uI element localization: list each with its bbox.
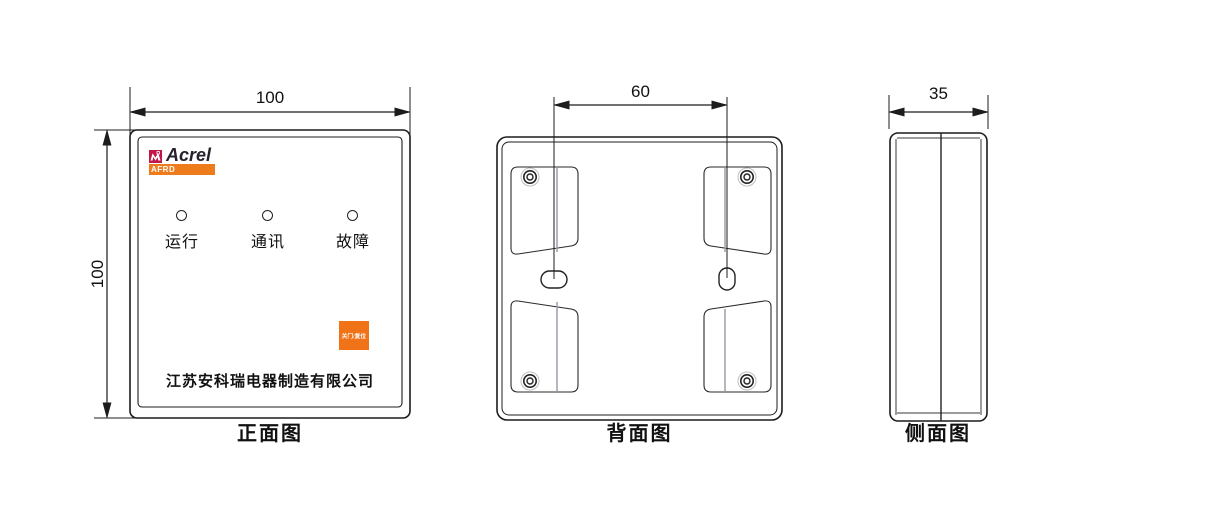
back-spacing-dimension [554, 97, 727, 279]
led-comm-label: 通讯 [236, 228, 300, 252]
panel-bottom-right [704, 301, 771, 392]
arrow-up-icon [103, 131, 111, 145]
arrow-right-icon [973, 108, 987, 116]
back-view-outline [497, 137, 782, 420]
side-depth-dim-label: 35 [889, 85, 988, 103]
brand-name: Acrel [166, 145, 211, 166]
series-name: AFRD [149, 165, 175, 174]
back-inner-step [502, 142, 777, 415]
led-fault-label: 故障 [321, 228, 385, 252]
screw-icon [521, 372, 539, 390]
panel-top-right [704, 167, 771, 254]
back-panel-ribs [557, 168, 725, 391]
back-outer-plate [497, 137, 782, 420]
front-width-dim-label: 100 [220, 89, 320, 107]
back-view-caption: 背面图 [497, 423, 782, 445]
arrow-right-icon [395, 108, 409, 116]
acrel-logo-icon [149, 150, 162, 163]
led-comm-indicator [262, 210, 273, 221]
side-view-caption: 侧面图 [878, 423, 998, 445]
screw-icon [738, 168, 756, 186]
arrow-left-icon [555, 101, 569, 109]
close-reset-button: 关门/复位 [339, 321, 369, 350]
side-body [890, 133, 987, 421]
screw-icon [521, 168, 539, 186]
back-keyhole-slots [541, 268, 735, 290]
side-view-outline [890, 133, 987, 421]
arrow-right-icon [712, 101, 726, 109]
screw-icon [738, 372, 756, 390]
back-mount-panels [511, 167, 771, 392]
arrow-down-icon [103, 403, 111, 417]
led-run-label: 运行 [150, 228, 214, 252]
close-reset-button-label: 关门/复位 [342, 331, 366, 340]
arrow-left-icon [131, 108, 145, 116]
company-name: 江苏安科瑞电器制造有限公司 [130, 370, 410, 391]
series-banner: AFRD [149, 164, 215, 175]
led-fault-indicator [347, 210, 358, 221]
front-view-caption: 正面图 [130, 423, 410, 445]
led-run-indicator [176, 210, 187, 221]
front-height-dim-label: 100 [89, 244, 107, 304]
arrow-left-icon [890, 108, 904, 116]
front-inner-panel [138, 137, 402, 407]
dimension-drawing-canvas: 100 100 60 35 Acrel AFRD 运行 通讯 故障 关门/复位 … [0, 0, 1212, 510]
back-spacing-dim-label: 60 [554, 83, 727, 101]
